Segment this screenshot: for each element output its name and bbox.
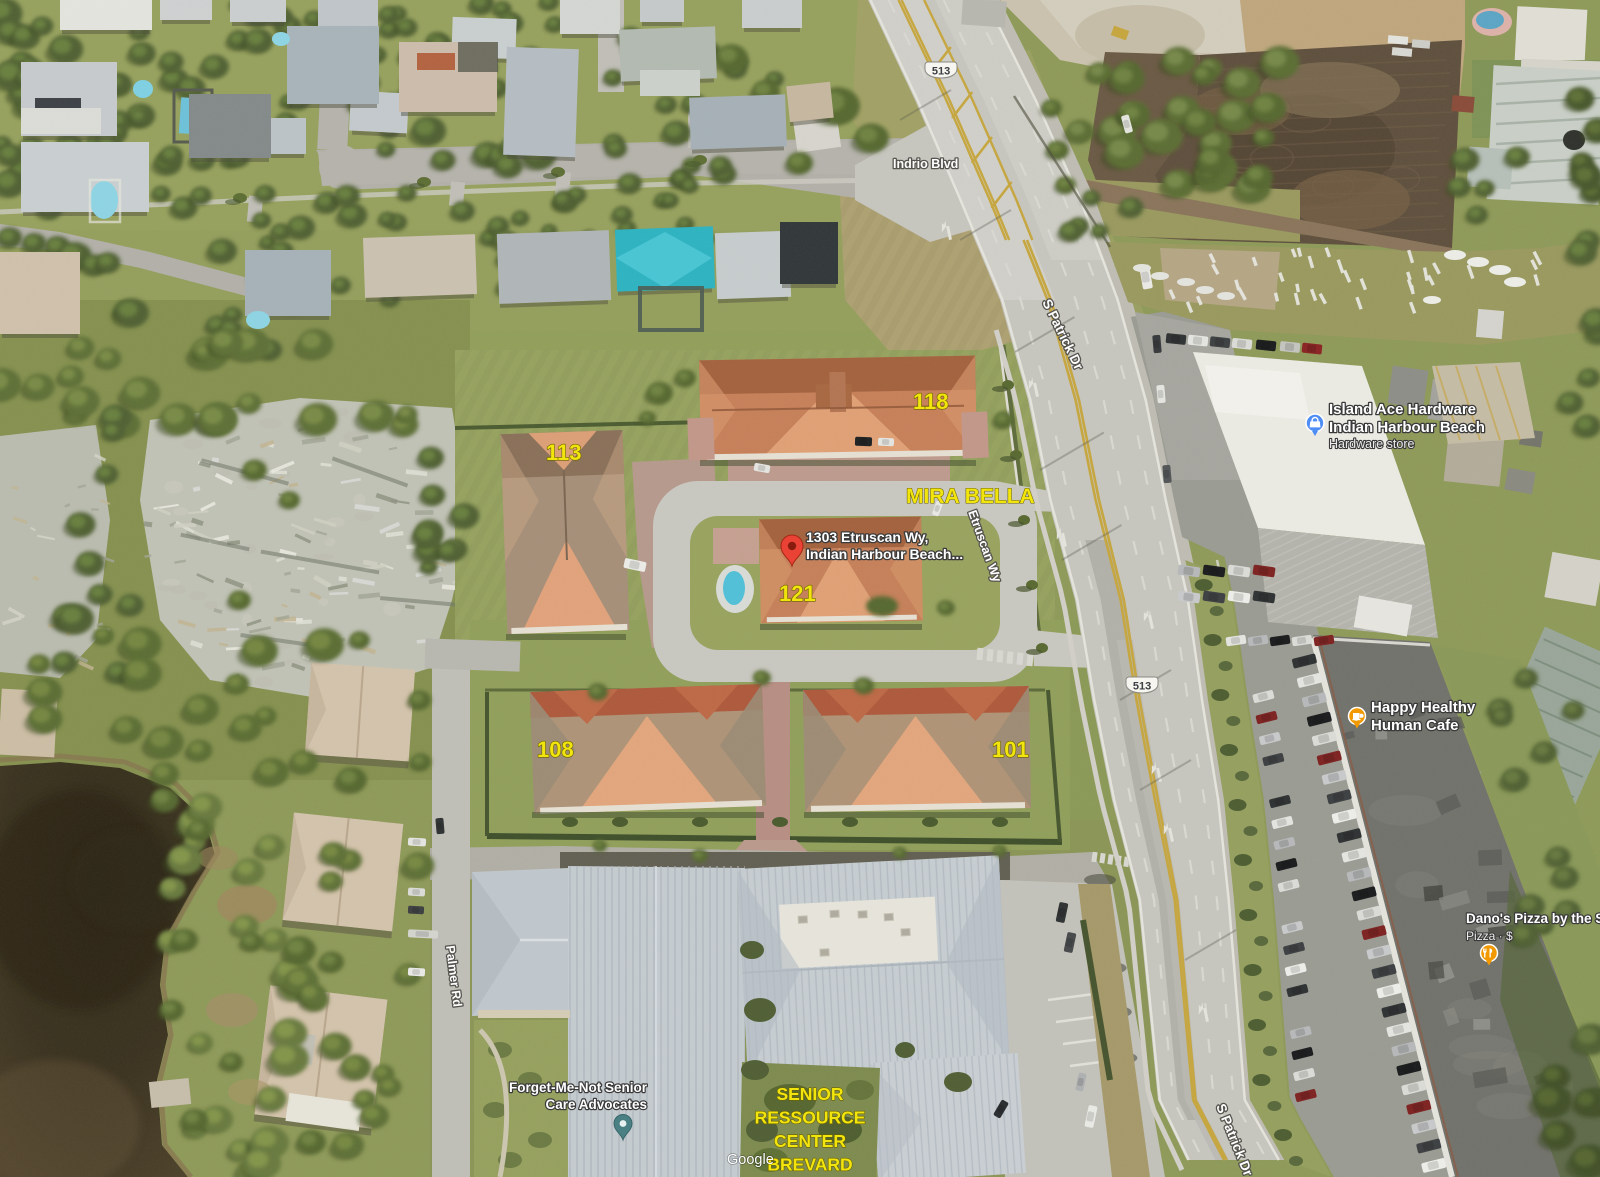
- svg-text:121: 121: [779, 581, 816, 606]
- svg-text:Indrio Blvd: Indrio Blvd: [893, 157, 958, 171]
- svg-text:Care Advocates: Care Advocates: [545, 1097, 647, 1112]
- svg-text:513: 513: [1133, 681, 1151, 693]
- svg-text:Dano's Pizza by the Sh: Dano's Pizza by the Sh: [1466, 911, 1600, 926]
- svg-text:Indian Harbour Beach...: Indian Harbour Beach...: [806, 546, 963, 562]
- svg-text:Human Cafe: Human Cafe: [1371, 717, 1459, 734]
- svg-text:Happy Healthy: Happy Healthy: [1371, 699, 1476, 716]
- svg-text:CENTER: CENTER: [774, 1131, 846, 1151]
- svg-text:BREVARD: BREVARD: [767, 1155, 852, 1175]
- svg-text:101: 101: [992, 737, 1029, 762]
- svg-text:Island Ace Hardware: Island Ace Hardware: [1329, 401, 1476, 418]
- svg-text:Indian Harbour Beach: Indian Harbour Beach: [1329, 419, 1485, 436]
- svg-text:Google: Google: [727, 1152, 774, 1168]
- svg-text:MIRA BELLA: MIRA BELLA: [906, 485, 1035, 508]
- svg-text:RESSOURCE: RESSOURCE: [755, 1108, 866, 1128]
- svg-text:Hardware store: Hardware store: [1329, 437, 1414, 451]
- svg-text:118: 118: [913, 389, 949, 414]
- svg-text:SENIOR: SENIOR: [776, 1084, 843, 1104]
- svg-text:108: 108: [537, 737, 574, 762]
- svg-text:Pizza · $: Pizza · $: [1466, 929, 1513, 943]
- svg-text:513: 513: [932, 66, 950, 78]
- svg-text:113: 113: [546, 440, 582, 465]
- svg-text:Forget-Me-Not Senior: Forget-Me-Not Senior: [509, 1080, 648, 1095]
- svg-text:1303 Etruscan Wy,: 1303 Etruscan Wy,: [806, 529, 928, 545]
